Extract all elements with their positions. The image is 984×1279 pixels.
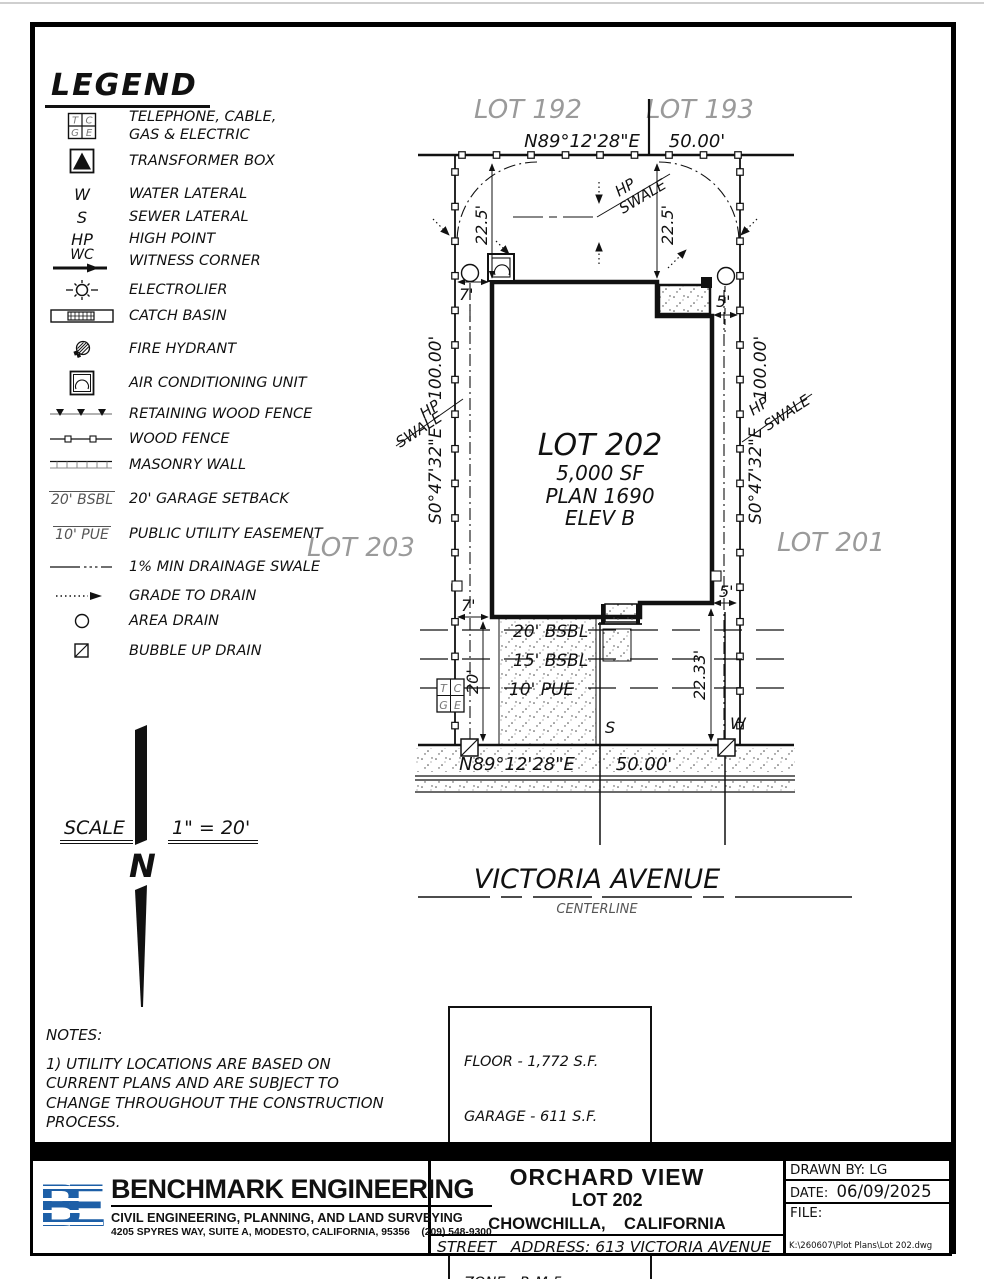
rear-distance-text: 50.00' xyxy=(669,131,725,152)
porch xyxy=(659,285,710,314)
dim-side-right-top: 5' xyxy=(716,292,731,311)
svg-text:G: G xyxy=(439,699,448,712)
note-1: 1) UTILITY LOCATIONS ARE BASED ON CURREN… xyxy=(46,1055,402,1132)
lot-203-label: LOT 203 xyxy=(307,533,415,563)
retaining-wood-fence-icon xyxy=(45,408,119,420)
legend-label: GRADE TO DRAIN xyxy=(129,587,256,605)
legend-label: AREA DRAIN xyxy=(129,612,219,630)
rear-bearing-text: N89°12'28"E xyxy=(524,131,640,152)
benchmark-logo: B E xyxy=(39,1177,103,1237)
sewer-lateral-label: S xyxy=(605,718,615,737)
project-lot: LOT 202 xyxy=(431,1191,783,1210)
dim-side-right-bottom: 5' xyxy=(719,582,734,601)
legend-label: WATER LATERAL xyxy=(129,185,247,203)
parcel-elev: ELEV B xyxy=(565,506,635,530)
legend-title: LEGEND xyxy=(45,68,210,108)
legend-label: AIR CONDITIONING UNIT xyxy=(129,374,307,392)
parcel-area: 5,000 SF xyxy=(556,461,644,485)
house-setback-label: 15' BSBL xyxy=(513,651,588,671)
site-plan-drawing: LOT 192 LOT 193 LOT 203 LOT 201 N89°12'2… xyxy=(300,95,960,950)
legend-label: 1% MIN DRAINAGE SWALE xyxy=(129,558,320,576)
entry-stoop xyxy=(598,604,642,661)
title-block-company-cell: B E BENCHMARK ENGINEERING CIVIL ENGINEER… xyxy=(33,1161,431,1253)
file-path: K:\260607\Plot Plans\Lot 202.dwg xyxy=(786,1241,949,1253)
garage-setback-label: 20' BSBL xyxy=(513,622,588,642)
street-name-group: VICTORIA AVENUE CENTERLINE xyxy=(418,864,852,917)
stat-garage: GARAGE - 611 S.F. xyxy=(464,1108,640,1126)
drawn-by-row: DRAWN BY: LG xyxy=(786,1161,949,1181)
dim-front-right: 22.33' xyxy=(690,650,709,700)
wood-fence-icon xyxy=(45,434,119,444)
date-row: DATE: 06/09/2025 xyxy=(786,1181,949,1204)
roof-drain-dot xyxy=(701,277,712,288)
pue-label: 10' PUE xyxy=(509,680,574,700)
pue-symbol: 10' PUE xyxy=(53,526,111,543)
legend-label: PUBLIC UTILITY EASEMENT xyxy=(129,525,323,543)
right-distance-text: 100.00' xyxy=(751,336,771,400)
lot-201-label: LOT 201 xyxy=(777,528,885,558)
tc-ge-box-icon: T C G E xyxy=(45,112,119,140)
tcge-box: T C G E xyxy=(437,679,464,712)
fire-hydrant-icon xyxy=(45,338,119,360)
bubble-up-drain-icon xyxy=(45,642,119,660)
legend-label: RETAINING WOOD FENCE xyxy=(129,405,312,423)
legend-label: HIGH POINT xyxy=(129,230,215,248)
file-row: FILE: xyxy=(786,1204,949,1222)
bsbl-symbol: 20' BSBL xyxy=(49,491,115,508)
legend-label: WITNESS CORNER xyxy=(129,252,261,270)
electrolier-icon xyxy=(45,279,119,301)
lot-193-label: LOT 193 xyxy=(646,95,754,125)
parcel-name: LOT 202 xyxy=(538,428,663,463)
dim-rear-left: 22.5' xyxy=(472,205,491,245)
legend-label: ELECTROLIER xyxy=(129,281,227,299)
legend-label: BUBBLE UP DRAIN xyxy=(129,642,262,660)
legend-label: TRANSFORMER BOX xyxy=(129,152,275,170)
rear-bearing: N89°12'28"E 50.00' xyxy=(524,131,725,152)
dim-side-left-top: 7' xyxy=(459,285,474,304)
svg-text:E: E xyxy=(86,128,93,139)
title-block-project-cell: ORCHARD VIEW LOT 202 CHOWCHILLA, CALIFOR… xyxy=(431,1161,786,1253)
parcel-plan: PLAN 1690 xyxy=(545,484,654,508)
stat-zone: ZONE - R-M-5 xyxy=(464,1274,640,1279)
drainage-swale-icon xyxy=(45,563,119,571)
centerline-label: CENTERLINE xyxy=(556,902,638,917)
lot-192-label: LOT 192 xyxy=(474,95,582,125)
street-name: VICTORIA AVENUE xyxy=(474,864,720,895)
dim-rear-right: 22.5' xyxy=(658,205,677,245)
right-bearing-text: S0°47'32"E xyxy=(746,427,766,524)
north-arrow: N xyxy=(118,722,178,1012)
catch-basin-icon xyxy=(45,307,119,325)
stat-floor: FLOOR - 1,772 S.F. xyxy=(464,1053,640,1071)
legend-label: 20' GARAGE SETBACK xyxy=(129,490,289,508)
project-name: ORCHARD VIEW xyxy=(431,1164,783,1191)
left-bearing-text: S0°47'32"E xyxy=(426,427,446,524)
legend-label: MASONRY WALL xyxy=(129,456,246,474)
front-bearing-text: N89°12'28"E xyxy=(459,754,575,775)
grade-to-drain-icon xyxy=(45,591,119,601)
area-drain-icon xyxy=(45,612,119,630)
svg-text:C: C xyxy=(86,116,93,127)
dim-front-left: 20' xyxy=(463,669,482,694)
svg-text:C: C xyxy=(454,682,462,695)
svg-text:E: E xyxy=(454,699,461,712)
svg-text:G: G xyxy=(71,128,79,139)
plot-plan-sheet: LEGEND T C G E TELEPHONE, CABLE, GAS & E… xyxy=(0,0,984,1279)
dim-side-left-bottom: 7' xyxy=(461,596,476,615)
legend-label: TELEPHONE, CABLE, GAS & ELECTRIC xyxy=(129,108,276,144)
north-letter: N xyxy=(129,847,156,885)
witness-corner-line-icon xyxy=(53,262,111,274)
legend-label: SEWER LATERAL xyxy=(129,208,249,226)
ac-unit-icon xyxy=(45,370,119,396)
project-street-address: STREET ADDRESS: 613 VICTORIA AVENUE xyxy=(431,1234,783,1257)
left-distance-text: 100.00' xyxy=(426,336,446,400)
project-city-state: CHOWCHILLA, CALIFORNIA xyxy=(431,1215,783,1234)
water-lateral-label: W xyxy=(730,714,747,733)
title-block-top-bar xyxy=(30,1142,952,1158)
notes-heading: NOTES: xyxy=(46,1026,402,1045)
sewer-lateral-symbol: S xyxy=(77,208,87,227)
title-block-meta-cell: DRAWN BY: LG DATE: 06/09/2025 FILE: K:\2… xyxy=(786,1161,949,1253)
transformer-box-icon xyxy=(45,148,119,174)
legend-label: CATCH BASIN xyxy=(129,307,227,325)
scale-value: 1" = 20' xyxy=(168,817,258,844)
masonry-wall-icon xyxy=(45,458,119,472)
svg-text:T: T xyxy=(72,116,79,127)
legend-label: FIRE HYDRANT xyxy=(129,340,236,358)
title-block: B E BENCHMARK ENGINEERING CIVIL ENGINEER… xyxy=(30,1158,952,1256)
page-top-edge xyxy=(0,2,984,4)
water-lateral-symbol: W xyxy=(74,185,90,204)
front-distance-text: 50.00' xyxy=(616,754,672,775)
legend-label: WOOD FENCE xyxy=(129,430,230,448)
witness-corner-symbol: WC xyxy=(70,248,94,262)
